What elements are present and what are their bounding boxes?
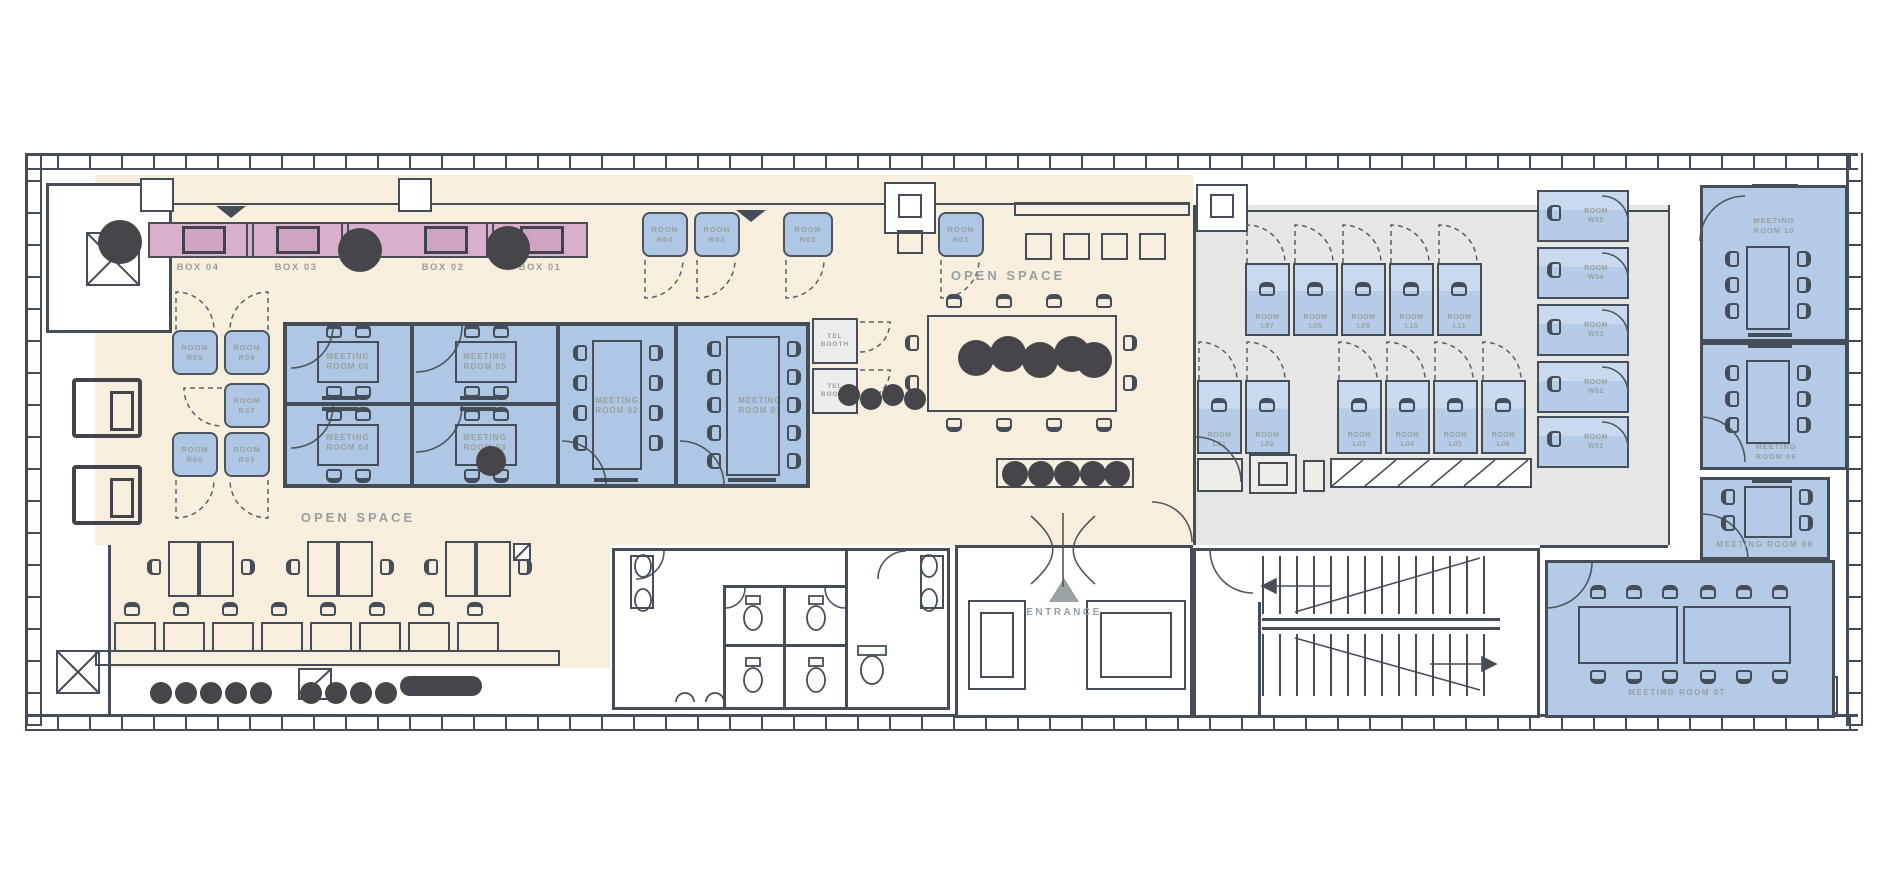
chair-icon: [1797, 417, 1811, 433]
meeting-room-label: MEETING ROOM 08: [1700, 540, 1830, 550]
tv-icon: [594, 478, 638, 482]
entrance-marker-icon: [1049, 578, 1079, 602]
room-r09: ROOM R09: [172, 330, 218, 375]
chair-icon: [1211, 398, 1227, 412]
chair-icon: [222, 602, 238, 616]
room-label: ROOM L01: [1199, 431, 1240, 449]
plant-icon: [98, 220, 142, 264]
chair-icon: [1626, 585, 1642, 599]
table: [114, 622, 156, 652]
chair-icon: [1307, 282, 1323, 296]
gray-zone-south-wall: [1540, 545, 1668, 548]
room-r06: ROOM R06: [172, 432, 218, 477]
tv-icon: [460, 396, 496, 400]
chair-icon: [355, 324, 371, 338]
plant-icon: [375, 682, 397, 704]
stair-landing: [1262, 618, 1500, 630]
door-marker-icon: [736, 210, 766, 222]
tel-booth: TEL BOOTH: [812, 318, 858, 364]
stair-flight-upper: [1262, 556, 1500, 614]
terrace-southwest-wall: [108, 545, 111, 715]
chair-icon: [787, 397, 801, 413]
room-r05: ROOM R05: [224, 432, 270, 477]
chair-icon: [1797, 365, 1811, 381]
room-r03: ROOM R03: [694, 212, 740, 257]
elevator-car: [1100, 612, 1172, 678]
chair-icon: [326, 469, 342, 483]
chair-icon: [1590, 585, 1606, 599]
chair-icon: [1096, 418, 1112, 432]
chair-icon: [1403, 282, 1419, 296]
chair-icon: [1662, 670, 1678, 684]
chair-icon: [573, 405, 587, 421]
lounge-chair-icon: [72, 465, 142, 525]
table: [317, 424, 379, 466]
stool-icon: [1025, 233, 1052, 260]
table: [317, 341, 379, 383]
chair-icon: [707, 341, 721, 357]
chair-icon: [1797, 251, 1811, 267]
table: [307, 541, 373, 597]
chair-icon: [707, 453, 721, 469]
plant-icon: [1080, 461, 1106, 487]
tv-icon: [460, 407, 496, 411]
chair-icon: [787, 369, 801, 385]
chair-icon: [1799, 489, 1813, 505]
table: [726, 336, 780, 476]
tel-booth-label: TEL BOOTH: [821, 333, 849, 350]
chair-icon: [355, 469, 371, 483]
chair-icon: [1547, 376, 1561, 392]
tv-icon: [197, 543, 201, 595]
chair-icon: [1725, 277, 1739, 293]
table: [1014, 202, 1190, 216]
table: [1683, 606, 1791, 664]
plant-icon: [958, 340, 994, 376]
copier-top: [1258, 462, 1288, 486]
chair-icon: [124, 602, 140, 616]
chair-icon: [1662, 585, 1678, 599]
room-label: ROOM L11: [1439, 313, 1480, 331]
chair-icon: [286, 559, 300, 575]
tv-icon: [1752, 479, 1792, 483]
open-space-label: OPEN SPACE: [898, 268, 1118, 285]
chair-icon: [1799, 515, 1813, 531]
room-label: ROOM R07: [233, 396, 260, 416]
plant-icon: [882, 384, 904, 406]
plant-icon: [350, 682, 372, 704]
room-label: ROOM L07: [1247, 313, 1288, 331]
table: [445, 541, 511, 597]
room-l05: ROOM L05: [1433, 380, 1478, 454]
chair-icon: [464, 469, 480, 483]
chair-icon: [1495, 398, 1511, 412]
chair-icon: [996, 418, 1012, 432]
lockers: [1330, 458, 1532, 488]
chair-icon: [707, 397, 721, 413]
table: [897, 230, 923, 254]
table: [408, 622, 450, 652]
chair-icon: [518, 559, 532, 575]
chair-icon: [787, 341, 801, 357]
lounge-chair-icon: [72, 378, 142, 438]
chair-icon: [380, 559, 394, 575]
chair-icon: [1590, 670, 1606, 684]
room-l09: ROOM L09: [1341, 263, 1386, 336]
chair-icon: [1725, 303, 1739, 319]
chair-icon: [271, 602, 287, 616]
chair-icon: [649, 405, 663, 421]
table: [630, 555, 654, 609]
stair-partition: [1258, 602, 1261, 718]
chair-icon: [418, 602, 434, 616]
room-l08: ROOM L08: [1293, 263, 1338, 336]
room-label: ROOM R05: [233, 445, 260, 465]
room-label: ROOM L05: [1435, 431, 1476, 449]
room-label: ROOM R09: [181, 343, 208, 363]
chair-icon: [1547, 262, 1561, 278]
tv-icon: [322, 407, 358, 411]
floor-plan: TEL BOOTH TEL BOOTH ROOM R04 ROOM R03 RO…: [0, 0, 1890, 891]
room-label: ROOM W02: [1567, 378, 1625, 396]
chair-icon: [1123, 375, 1137, 391]
chair-icon: [241, 559, 255, 575]
chair-icon: [1259, 398, 1275, 412]
chair-icon: [1123, 335, 1137, 351]
lounge-chair-seat: [110, 391, 134, 431]
chair-icon: [1721, 515, 1735, 531]
plant-icon: [150, 682, 172, 704]
table: [310, 622, 352, 652]
table: [1744, 486, 1792, 538]
chair-icon: [996, 294, 1012, 308]
east-window-wall: [1846, 153, 1863, 726]
north-window-wall: [25, 153, 1858, 170]
chair-icon: [1447, 398, 1463, 412]
chair-icon: [1725, 417, 1739, 433]
chair-icon: [573, 435, 587, 451]
room-label: ROOM W03: [1567, 321, 1625, 339]
stool-icon: [1063, 233, 1090, 260]
room-l10: ROOM L10: [1389, 263, 1434, 336]
room-l11: ROOM L11: [1437, 263, 1482, 336]
room-l04: ROOM L04: [1385, 380, 1430, 454]
restroom-wall: [723, 644, 848, 647]
chair-icon: [424, 559, 438, 575]
chair-icon: [1259, 282, 1275, 296]
chair-icon: [173, 602, 189, 616]
west-window-wall: [25, 153, 42, 726]
chair-icon: [1725, 391, 1739, 407]
elevator-car: [1210, 194, 1234, 218]
restrooms: [612, 548, 950, 710]
meeting-room-label: MEETING ROOM 07: [1597, 688, 1757, 698]
chair-icon: [1096, 294, 1112, 308]
column: [140, 178, 174, 212]
gray-zone-east-wall: [1668, 205, 1670, 545]
chair-icon: [649, 435, 663, 451]
room-r01: ROOM R01: [938, 212, 984, 257]
chair-icon: [1772, 585, 1788, 599]
door-marker-icon: [216, 206, 246, 218]
chair-icon: [1351, 398, 1367, 412]
room-label: ROOM L03: [1339, 431, 1380, 449]
room-label: ROOM R03: [703, 225, 730, 245]
chair-icon: [467, 602, 483, 616]
table: [163, 622, 205, 652]
table: [1578, 606, 1678, 664]
chair-icon: [1046, 418, 1062, 432]
chair-icon: [320, 602, 336, 616]
chair-icon: [787, 425, 801, 441]
sofa-icon: [276, 226, 320, 254]
plant-icon: [1028, 461, 1054, 487]
room-label: ROOM L06: [1483, 431, 1524, 449]
room-l07: ROOM L07: [1245, 263, 1290, 336]
column: [398, 178, 432, 212]
box-label: BOX 02: [403, 262, 483, 274]
chair-icon: [946, 294, 962, 308]
table: [1746, 360, 1790, 444]
plant-icon: [200, 682, 222, 704]
box-divider: [246, 222, 248, 258]
plant-icon: [1022, 342, 1058, 378]
table: [168, 541, 234, 597]
room-label: ROOM R02: [794, 225, 821, 245]
room-label: ROOM R01: [947, 225, 974, 245]
table: [457, 622, 499, 652]
tv-icon: [728, 478, 776, 482]
block-wall: [283, 402, 560, 406]
block-wall: [674, 322, 678, 488]
room-r02: ROOM R02: [783, 212, 833, 257]
tv-icon: [336, 543, 340, 595]
plant-icon: [860, 388, 882, 410]
plant-icon: [338, 228, 382, 272]
chair-icon: [649, 375, 663, 391]
box-label: BOX 04: [158, 262, 238, 274]
chair-icon: [1797, 277, 1811, 293]
chair-icon: [573, 375, 587, 391]
open-space-label: OPEN SPACE: [248, 510, 468, 527]
chair-icon: [369, 602, 385, 616]
room-l02: ROOM L02: [1245, 380, 1290, 454]
plant-icon: [1076, 342, 1112, 378]
chair-icon: [1736, 670, 1752, 684]
room-label: ROOM W05: [1567, 207, 1625, 225]
plant-icon: [486, 226, 530, 270]
table: [95, 650, 560, 666]
chair-icon: [493, 324, 509, 338]
chair-icon: [1547, 205, 1561, 221]
room-label: ROOM R04: [651, 225, 678, 245]
room-label: ROOM R06: [181, 445, 208, 465]
chair-icon: [1797, 303, 1811, 319]
plant-icon: [476, 446, 506, 476]
chair-icon: [707, 425, 721, 441]
chair-icon: [649, 345, 663, 361]
chair-icon: [1721, 489, 1735, 505]
room-label: ROOM W04: [1567, 264, 1625, 282]
plant-icon: [1054, 461, 1080, 487]
chair-icon: [1355, 282, 1371, 296]
meeting-room-label: MEETING ROOM 10: [1714, 216, 1834, 236]
table: [359, 622, 401, 652]
chair-icon: [946, 418, 962, 432]
plant-icon: [250, 682, 272, 704]
room-label: ROOM L10: [1391, 313, 1432, 331]
plant-icon: [300, 682, 322, 704]
room-l03: ROOM L03: [1337, 380, 1382, 454]
room-label: ROOM L09: [1343, 313, 1384, 331]
meeting-room-label: MEETING ROOM 09: [1716, 442, 1836, 462]
chair-icon: [1451, 282, 1467, 296]
tv-icon: [1748, 333, 1792, 337]
shaft-symbol: [56, 650, 100, 694]
chair-icon: [787, 453, 801, 469]
tv-icon: [322, 396, 358, 400]
table: [1746, 246, 1790, 330]
chair-icon: [1736, 585, 1752, 599]
plant-icon: [990, 336, 1026, 372]
plant-icon: [325, 682, 347, 704]
room-label: ROOM L02: [1247, 431, 1288, 449]
elevator-car: [898, 194, 922, 218]
table: [212, 622, 254, 652]
chair-icon: [464, 324, 480, 338]
room-label: ROOM R08: [233, 343, 260, 363]
plant-icon: [175, 682, 197, 704]
sofa-icon: [424, 226, 468, 254]
chair-icon: [1700, 670, 1716, 684]
table: [261, 622, 303, 652]
chair-icon: [1399, 398, 1415, 412]
stool-icon: [1101, 233, 1128, 260]
room-label: ROOM W01: [1567, 433, 1625, 451]
room-label: ROOM L04: [1387, 431, 1428, 449]
chair-icon: [1046, 294, 1062, 308]
room-r04: ROOM R04: [642, 212, 688, 257]
box-divider: [252, 222, 254, 258]
entrance-label: ENTRANCE: [1016, 606, 1112, 619]
chair-icon: [1626, 670, 1642, 684]
tv-icon: [474, 543, 478, 595]
chair-icon: [147, 559, 161, 575]
plant-icon: [1104, 461, 1130, 487]
gray-zone-west-wall: [1193, 205, 1196, 545]
box-label: BOX 03: [256, 262, 336, 274]
chair-icon: [707, 369, 721, 385]
elevator-car: [980, 612, 1014, 678]
chair-icon: [1725, 365, 1739, 381]
cabinet: [1197, 458, 1243, 492]
stool-icon: [1139, 233, 1166, 260]
room-r07: ROOM R07: [224, 383, 270, 428]
chair-icon: [1725, 251, 1739, 267]
room-r08: ROOM R08: [224, 330, 270, 375]
table: [920, 555, 944, 609]
plant-icon: [904, 388, 926, 410]
table: [592, 340, 642, 470]
plant-icon: [838, 384, 860, 406]
bench: [400, 676, 482, 696]
tv-icon: [1748, 344, 1792, 348]
printer: [1303, 460, 1325, 492]
chair-icon: [573, 345, 587, 361]
stair-flight-lower: [1262, 634, 1500, 696]
chair-icon: [905, 335, 919, 351]
restroom-wall: [723, 585, 848, 588]
chair-icon: [326, 324, 342, 338]
plant-icon: [225, 682, 247, 704]
chair-icon: [1700, 585, 1716, 599]
plant-icon: [1002, 461, 1028, 487]
chair-icon: [1797, 391, 1811, 407]
table: [455, 341, 517, 383]
lounge-chair-seat: [110, 478, 134, 518]
room-l01: ROOM L01: [1197, 380, 1242, 454]
room-label: ROOM L08: [1295, 313, 1336, 331]
chair-icon: [1547, 319, 1561, 335]
restroom-wall: [845, 548, 848, 708]
room-l06: ROOM L06: [1481, 380, 1526, 454]
chair-icon: [1772, 670, 1788, 684]
sofa-icon: [182, 226, 226, 254]
chair-icon: [1547, 431, 1561, 447]
